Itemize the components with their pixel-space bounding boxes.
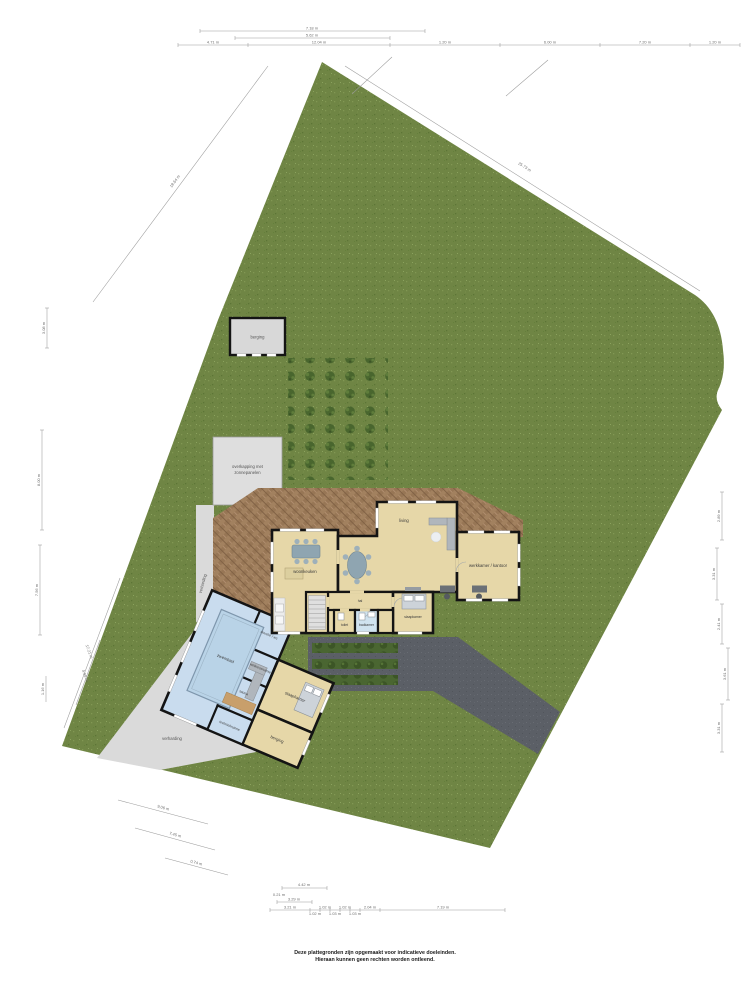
- dim-top-1: 5.62 m: [306, 33, 319, 38]
- dim-bottom-0: 4.42 m: [298, 882, 311, 887]
- dim-top-5: 6.00 m: [544, 40, 557, 45]
- room-label-living: living: [399, 518, 409, 523]
- hedge-row: [312, 659, 398, 669]
- dim-bottom-4: 1.02 m: [309, 911, 322, 916]
- dim-right-5: 3.31 m: [716, 721, 721, 734]
- tv-cabinet: [405, 587, 421, 591]
- dim-bottom-1: 0.21 m: [273, 892, 286, 897]
- dim-top-3: 12.04 m: [312, 40, 327, 45]
- dim-left-0: 3.08 m: [41, 321, 46, 334]
- dim-right-4: 3.61 m: [722, 667, 727, 680]
- hedge-row: [312, 643, 398, 653]
- dim-bottom-8: 1.03 m: [349, 911, 362, 916]
- disclaimer-line-2: Hieraan kunnen geen rechten worden ontle…: [315, 957, 435, 963]
- dim-left-3: 1.16 m: [40, 682, 45, 695]
- dim-right-1: 2.89 m: [716, 509, 721, 522]
- floorplan-page: verharding verharding berging overkappin…: [0, 0, 750, 1000]
- shed: berging: [230, 318, 285, 356]
- room-label-bathroom: badkamer: [359, 623, 375, 627]
- dim-bottom-5: 1.02 m: [319, 905, 332, 910]
- dim-bottom-3: 3.21 m: [284, 905, 297, 910]
- dim-right-2: 3.31 m: [711, 567, 716, 580]
- dim-left-2: 7.56 m: [34, 583, 39, 596]
- paving-bottom-label: verharding: [162, 736, 182, 741]
- dim-bottom-9: 2.04 m: [364, 905, 377, 910]
- dim-left-1: 8.00 m: [36, 473, 41, 486]
- kitchen-counter: [274, 598, 285, 631]
- room-label-bedroom: slaapkamer: [404, 615, 422, 619]
- room-label-office: werkkamer / kantoor: [469, 563, 508, 568]
- dim-top-7: 1.20 m: [709, 40, 722, 45]
- carport-label-1: overkapping met: [232, 464, 264, 469]
- shed-label: berging: [251, 335, 266, 340]
- room-label-kitchen: woonkeuken: [293, 569, 317, 574]
- room-corridor: [378, 610, 393, 633]
- dim-bottom-6: 1.03 m: [329, 911, 342, 916]
- room-label-hall: hal: [358, 599, 363, 603]
- dim-right-3: 2.41 m: [716, 617, 721, 630]
- dim-top-6: 7.20 m: [639, 40, 652, 45]
- kitchen-table: [292, 539, 320, 564]
- carport-label-2: zonnepanelen: [234, 470, 261, 475]
- disclaimer-line-1: Deze plattegronden zijn opgemaakt voor i…: [294, 950, 456, 956]
- dim-bottom-7: 1.02 m: [339, 905, 352, 910]
- sink: [368, 612, 375, 617]
- dim-top-0: 7.18 m: [306, 26, 319, 31]
- room-toilet: [334, 610, 355, 633]
- orchard-trees: [288, 358, 388, 480]
- site-plan-svg: verharding verharding berging overkappin…: [0, 0, 750, 1000]
- rug: [431, 532, 441, 542]
- dim-top-4: 1.20 m: [439, 40, 452, 45]
- room-label-toilet: toilet: [341, 623, 348, 627]
- dim-bottom-2: 3.29 m: [288, 897, 301, 902]
- dim-top-2: 4.71 m: [207, 40, 220, 45]
- stairs: [309, 596, 326, 630]
- bed: [402, 594, 426, 609]
- dim-bottom-10: 7.19 m: [437, 905, 450, 910]
